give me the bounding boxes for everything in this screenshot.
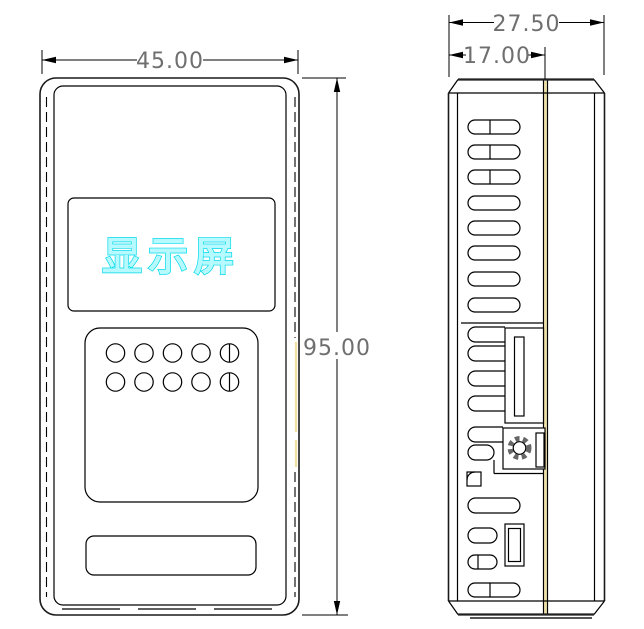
keypad-hole [163,344,181,362]
vent-slot-partial [468,371,505,386]
side-top-chamfer-left [449,80,459,94]
arrowhead-bottom [334,601,340,615]
boss-outline [503,428,545,469]
side-bottom-chamfer-left [449,601,459,615]
vent-slots-partial [468,327,505,460]
vent-slot-short [468,445,494,460]
vent-slot [468,196,520,210]
vent-slot [468,221,520,235]
vent-slot [468,145,520,159]
vent-slot-partial [468,327,505,342]
vent-slot [468,170,520,184]
vent-slot [468,120,520,134]
arrowhead-right [284,57,298,63]
keypad-hole [192,344,210,362]
vent-slots [468,120,520,312]
outer-depth-dimension-value: 27.50 [493,12,561,37]
vent-slot-short [468,555,497,569]
vent-slot-partial [468,427,503,442]
dimension-width: 45.00 [42,45,298,74]
front-view: 显示屏 [40,78,299,615]
arrowhead-left [42,57,56,63]
lower-ports [468,498,524,597]
width-dimension-value: 45.00 [136,49,204,74]
display-screen-label: 显示屏 [102,234,240,280]
keypad-hole [106,373,124,391]
cad-drawing: 显示屏 45.00 [0,0,644,629]
keypad-hole [135,344,153,362]
arrowhead-left [449,19,463,25]
dimension-height: 95.00 [302,78,371,615]
side-top-chamfer-right [594,80,605,94]
vent-slot [468,298,520,312]
label-recess [86,536,256,575]
vent-slot-partial [468,346,505,361]
small-port-arc [467,472,475,480]
front-outer-outline [40,78,299,615]
arrowhead-left [449,52,463,58]
height-dimension-value: 95.00 [303,336,371,361]
keypad-hole [163,373,181,391]
inner-depth-dimension-value: 17.00 [463,44,531,69]
screw-boss [494,428,545,474]
arrowhead-right [531,52,545,58]
front-inner-face [54,86,286,605]
keypad-hole [106,344,124,362]
arrowhead-top [334,78,340,92]
keypad-hole [192,373,210,391]
vent-slot [468,246,520,260]
vent-slot [468,583,520,597]
cad-drawing-page: 显示屏 45.00 [0,0,644,629]
vent-slot-short [468,528,497,543]
vent-slot-partial [468,396,505,411]
keypad-panel [85,328,258,502]
vent-slot [468,498,520,513]
keypad-hole [135,373,153,391]
keypad-outline [85,328,258,502]
side-view [449,80,605,619]
dimension-depth-inner: 17.00 [449,42,545,79]
arrowhead-right [590,19,604,25]
switch-outline [505,524,524,566]
side-bottom-chamfer-right [594,601,605,615]
vent-slot [468,272,520,286]
